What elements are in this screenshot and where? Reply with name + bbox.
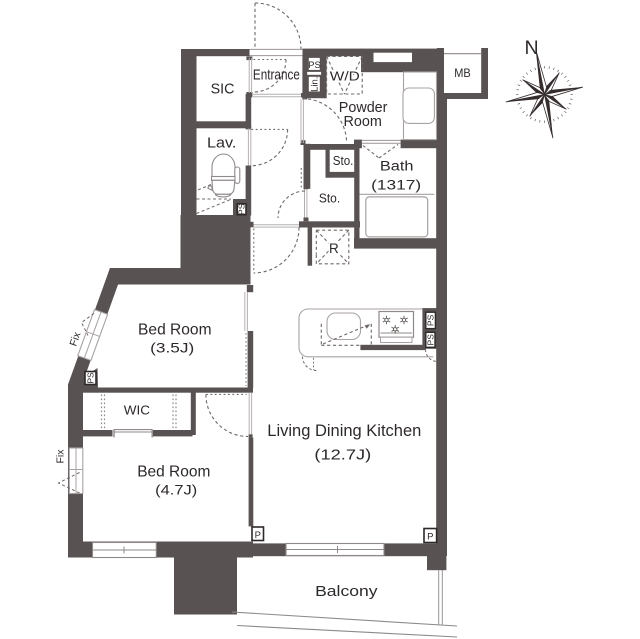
svg-text:Fix: Fix xyxy=(55,449,67,464)
svg-text:W/D: W/D xyxy=(330,69,360,84)
svg-text:PS: PS xyxy=(426,314,436,326)
svg-text:Sto.: Sto. xyxy=(333,153,354,168)
svg-text:SIC: SIC xyxy=(211,82,235,98)
svg-text:(12.7J): (12.7J) xyxy=(314,448,371,464)
svg-text:Sto.: Sto. xyxy=(319,191,340,206)
svg-text:Entrance: Entrance xyxy=(253,68,300,84)
svg-text:Bath: Bath xyxy=(380,158,414,174)
svg-text:P: P xyxy=(255,530,261,541)
svg-text:Lin.: Lin. xyxy=(310,77,321,92)
svg-text:R: R xyxy=(329,241,339,256)
svg-text:PS: PS xyxy=(86,372,96,384)
svg-text:(1317): (1317) xyxy=(371,176,421,192)
svg-text:WIC: WIC xyxy=(124,404,150,418)
svg-text:P: P xyxy=(427,532,433,543)
svg-text:(3.5J): (3.5J) xyxy=(150,339,194,355)
svg-text:Bed Room: Bed Room xyxy=(138,321,212,338)
svg-text:(4.7J): (4.7J) xyxy=(155,481,197,497)
svg-text:PS: PS xyxy=(308,60,321,71)
svg-text:PS: PS xyxy=(237,203,247,215)
svg-text:Bed Room: Bed Room xyxy=(137,464,210,481)
svg-text:Lav.: Lav. xyxy=(207,136,236,152)
svg-text:PS: PS xyxy=(425,334,435,346)
svg-text:MB: MB xyxy=(454,66,471,80)
svg-text:N: N xyxy=(524,37,538,59)
svg-text:Living Dining Kitchen: Living Dining Kitchen xyxy=(267,421,421,440)
svg-text:Room: Room xyxy=(344,113,382,130)
svg-text:Balcony: Balcony xyxy=(315,584,378,600)
